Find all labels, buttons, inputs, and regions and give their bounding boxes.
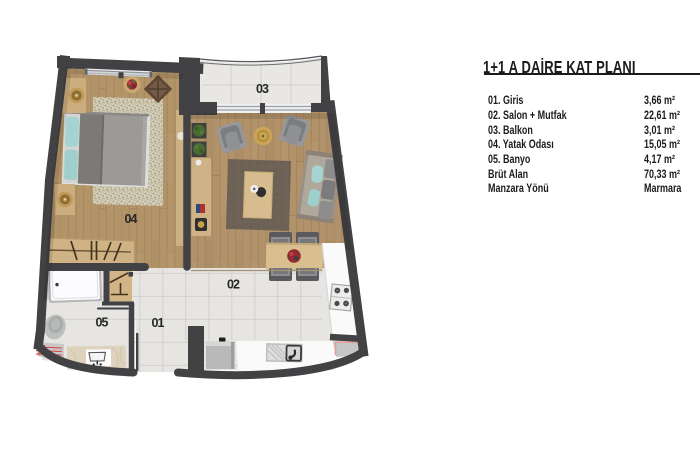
svg-text:01: 01 (152, 316, 165, 330)
svg-text:05: 05 (96, 316, 109, 330)
svg-text:02: 02 (227, 278, 240, 292)
svg-text:03: 03 (256, 82, 269, 96)
svg-text:04: 04 (125, 212, 138, 226)
